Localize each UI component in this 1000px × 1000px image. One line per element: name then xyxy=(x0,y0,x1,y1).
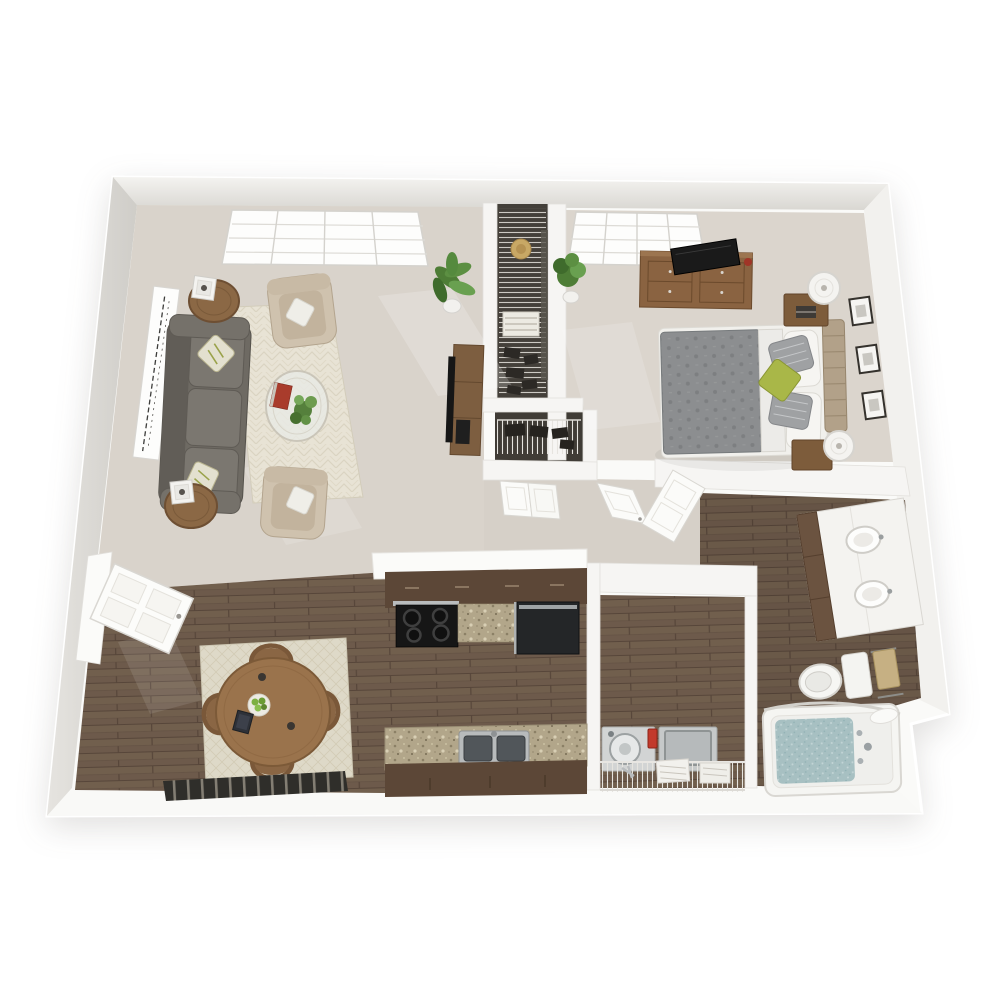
table-cup xyxy=(287,722,295,730)
media-component xyxy=(455,420,470,444)
washer-dial xyxy=(608,731,614,737)
walkin-closet xyxy=(499,208,548,395)
floor-plan-image xyxy=(0,0,1000,1000)
fruit-bowl xyxy=(248,694,270,716)
table-cup xyxy=(258,673,266,681)
laundry-north-wall xyxy=(600,563,757,596)
door-handle xyxy=(638,517,642,521)
closet-double-doors xyxy=(500,481,560,519)
table-lamp xyxy=(808,272,840,304)
lower-cabinet-run xyxy=(385,760,587,797)
floor-plan-rendering xyxy=(0,0,1000,1000)
decor-item xyxy=(744,258,752,266)
candle-lantern xyxy=(192,276,217,301)
detergent-bottle xyxy=(648,729,657,748)
wire-shelving xyxy=(499,208,546,394)
refrigerator xyxy=(514,602,579,654)
armchair-south xyxy=(260,466,329,540)
linen-closet xyxy=(497,420,581,454)
double-sink xyxy=(459,731,529,765)
folded-towel xyxy=(700,763,730,783)
dining-table xyxy=(216,658,330,766)
sink-faucet xyxy=(491,731,497,737)
coffee-table xyxy=(266,371,328,441)
double-vanity xyxy=(797,498,924,641)
range-cooktop xyxy=(393,601,459,647)
bed xyxy=(658,320,847,459)
folded-blanket xyxy=(503,312,539,336)
gray-duvet xyxy=(660,330,763,455)
laundry-wire-shelf xyxy=(600,759,745,792)
granite-counter-north xyxy=(458,604,515,642)
table-lamp xyxy=(824,431,854,461)
laundry-bathroom-wall xyxy=(745,596,757,788)
closet-divider-wall xyxy=(483,398,583,412)
armchair-north xyxy=(266,272,338,349)
living-room-window xyxy=(222,210,428,266)
hallway-north-wall-west xyxy=(483,460,597,480)
laundry-west-wall xyxy=(587,563,600,790)
closet-shadow xyxy=(541,230,548,380)
tub-water xyxy=(775,717,855,784)
folded-towel xyxy=(656,759,689,783)
media-console xyxy=(445,344,484,455)
candle-lantern xyxy=(170,480,194,504)
